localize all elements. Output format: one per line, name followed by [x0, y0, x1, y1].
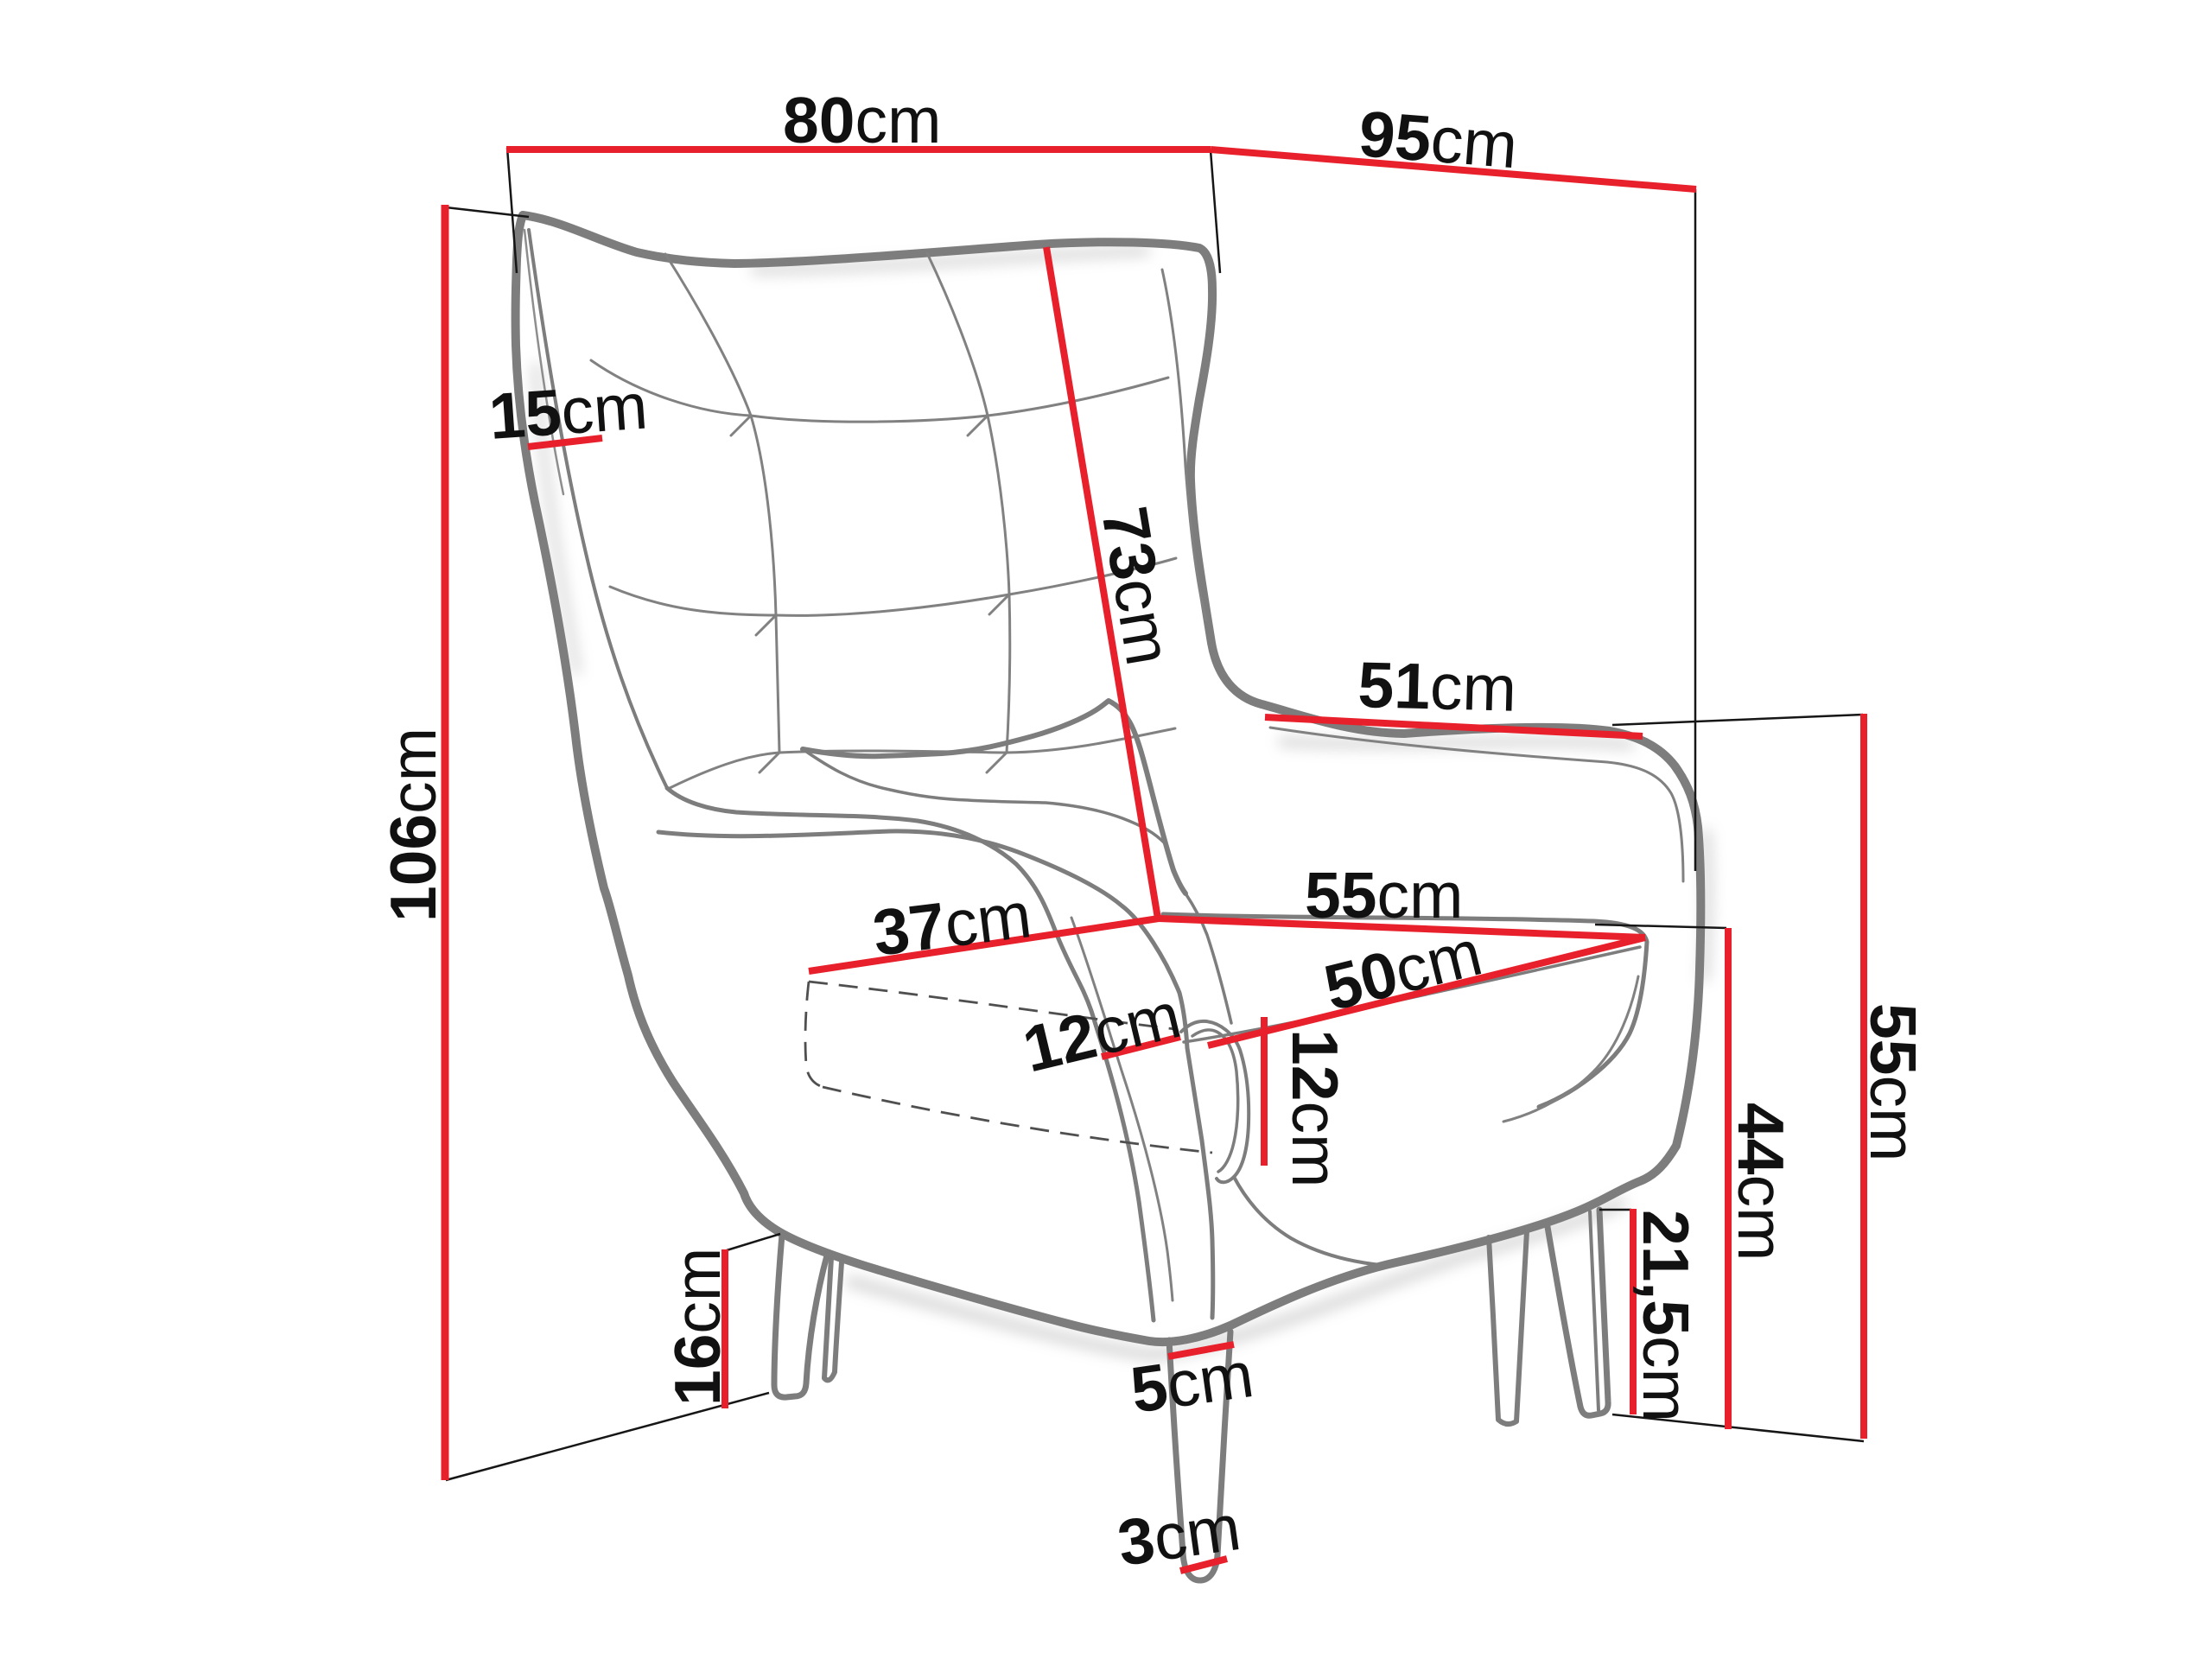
- svg-text:55cm: 55cm: [1857, 1003, 1929, 1161]
- svg-text:55cm: 55cm: [1305, 859, 1463, 931]
- svg-text:95cm: 95cm: [1357, 97, 1520, 181]
- svg-text:21,5cm: 21,5cm: [1630, 1210, 1702, 1422]
- svg-text:44cm: 44cm: [1725, 1103, 1797, 1261]
- svg-text:51cm: 51cm: [1357, 648, 1518, 725]
- svg-text:80cm: 80cm: [783, 84, 941, 156]
- svg-text:15cm: 15cm: [486, 369, 650, 453]
- svg-text:106cm: 106cm: [377, 728, 449, 922]
- svg-text:12cm: 12cm: [1279, 1029, 1351, 1187]
- svg-text:16cm: 16cm: [661, 1248, 734, 1406]
